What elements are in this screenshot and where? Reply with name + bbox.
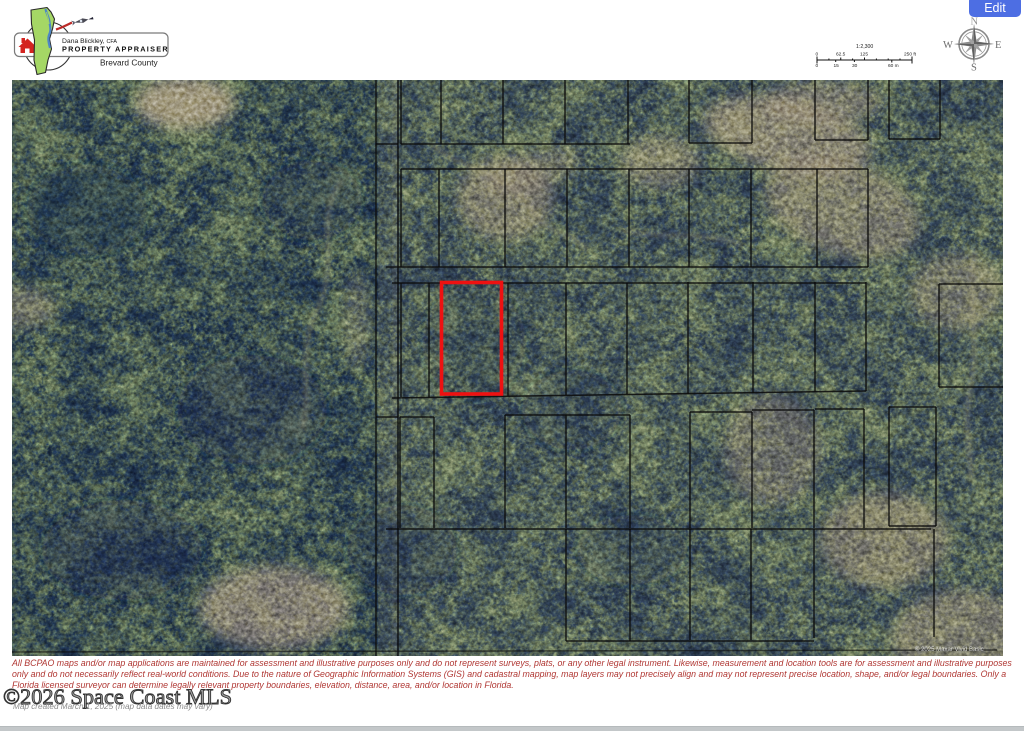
svg-text:Brevard County: Brevard County <box>100 58 158 68</box>
svg-text:250 ft: 250 ft <box>904 52 917 58</box>
svg-text:1:2,300: 1:2,300 <box>856 44 873 50</box>
svg-text:S: S <box>971 63 977 74</box>
svg-text:125: 125 <box>860 52 868 58</box>
svg-text:60 m: 60 m <box>888 63 899 69</box>
svg-text:PROPERTY APPRAISER: PROPERTY APPRAISER <box>62 45 169 54</box>
svg-text:© 2025 Maxar Vivid Basic: © 2025 Maxar Vivid Basic <box>915 646 984 653</box>
svg-text:30: 30 <box>852 63 858 69</box>
svg-text:0: 0 <box>816 63 819 69</box>
svg-text:15: 15 <box>834 63 840 69</box>
svg-text:E: E <box>995 40 1001 51</box>
svg-text:W: W <box>943 40 953 51</box>
svg-text:62.5: 62.5 <box>836 52 846 58</box>
svg-text:N: N <box>971 17 979 28</box>
